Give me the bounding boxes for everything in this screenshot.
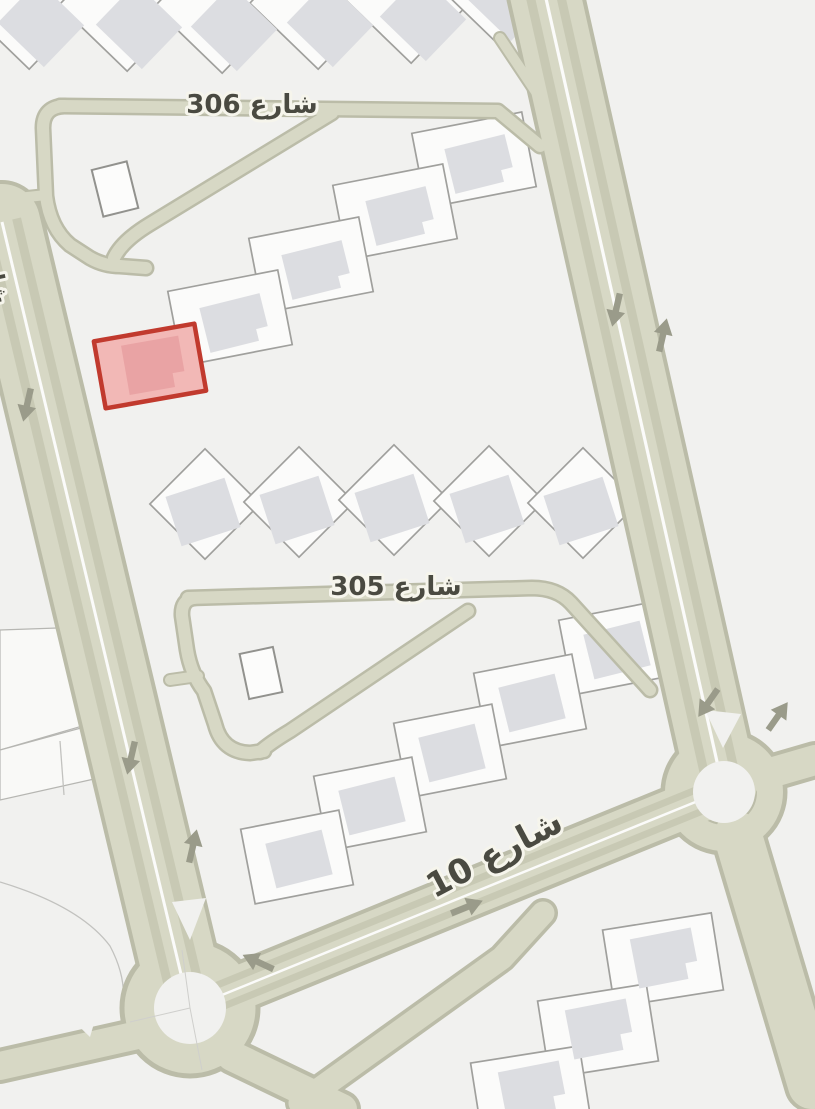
middle-diamond-parcels: [150, 445, 638, 559]
highlighted-parcel[interactable]: [94, 324, 206, 409]
top-diamond-parcels: [0, 0, 565, 73]
street-305-label: شارع 305: [330, 572, 461, 602]
street-306-label: شارع 306: [186, 90, 317, 120]
map-canvas[interactable]: شارع 306 شارع 305 شارع 10 شارع: [0, 0, 815, 1109]
parcel-boundary-line: [0, 882, 124, 1010]
upper-staircase-parcels: [168, 112, 536, 366]
roundabout-center: [693, 761, 755, 823]
empty-parcel-306: [92, 161, 139, 216]
map-svg: شارع 306 شارع 305 شارع 10 شارع: [0, 0, 815, 1109]
arrow-up-right-icon: [760, 697, 795, 736]
empty-parcel-305: [240, 647, 283, 699]
